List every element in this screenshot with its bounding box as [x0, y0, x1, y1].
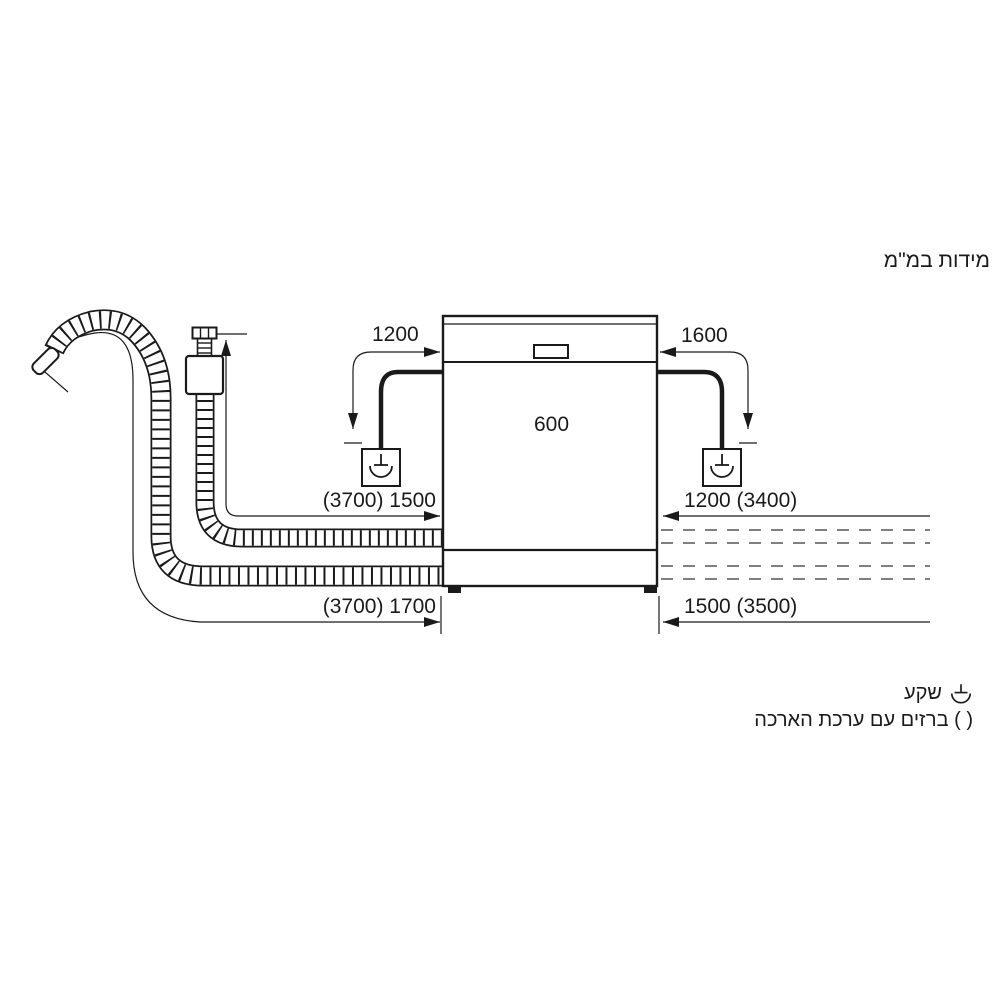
left-socket-icon	[362, 449, 400, 486]
legend: שקע ( ) ברזים עם ערכת הארכה	[754, 680, 973, 734]
legend-socket-row: שקע	[754, 680, 973, 707]
legend-taps-row: ( ) ברזים עם ערכת הארכה	[754, 707, 973, 734]
dim-power-cord-right-label: 1600	[681, 325, 728, 346]
drain-hose-end-cap	[30, 346, 60, 376]
power-cord-right	[657, 372, 722, 450]
legend-extension-note: ( ) ברזים עם ערכת הארכה	[754, 707, 973, 734]
dim-inlet-hose-right-label: 1200 (3400)	[684, 490, 797, 511]
dim-inlet-hose-left-label: (3700) 1500	[323, 490, 436, 511]
dim-power-cord-left-label: 1200	[372, 324, 419, 345]
tap-nut	[193, 328, 217, 339]
dishwasher-outline	[443, 316, 657, 593]
right-socket-icon	[703, 449, 741, 486]
legend-socket-label: שקע	[904, 680, 942, 707]
dim-drain-hose-left-label: (3700) 1700	[323, 596, 436, 617]
appliance-foot-left	[448, 586, 461, 593]
dashed-hose-extension-lines	[661, 530, 930, 579]
page-title: מידות במ"מ	[884, 249, 990, 273]
appliance-foot-right	[644, 586, 657, 593]
socket-icon	[949, 681, 973, 706]
diagram-graphics	[0, 0, 1000, 1000]
power-cord-left	[381, 372, 443, 450]
control-display-window	[534, 345, 568, 358]
dim-power-cord-left-arrow	[353, 352, 440, 429]
installation-diagram: 1200 1600 600 (3700) 1500 1200 (3400) (3…	[0, 0, 1000, 1000]
dim-appliance-width-label: 600	[526, 414, 577, 435]
dim-power-cord-right-arrow	[660, 352, 748, 429]
aquastop-connector	[186, 328, 223, 395]
dim-drain-hose-right-label: 1500 (3500)	[684, 596, 797, 617]
